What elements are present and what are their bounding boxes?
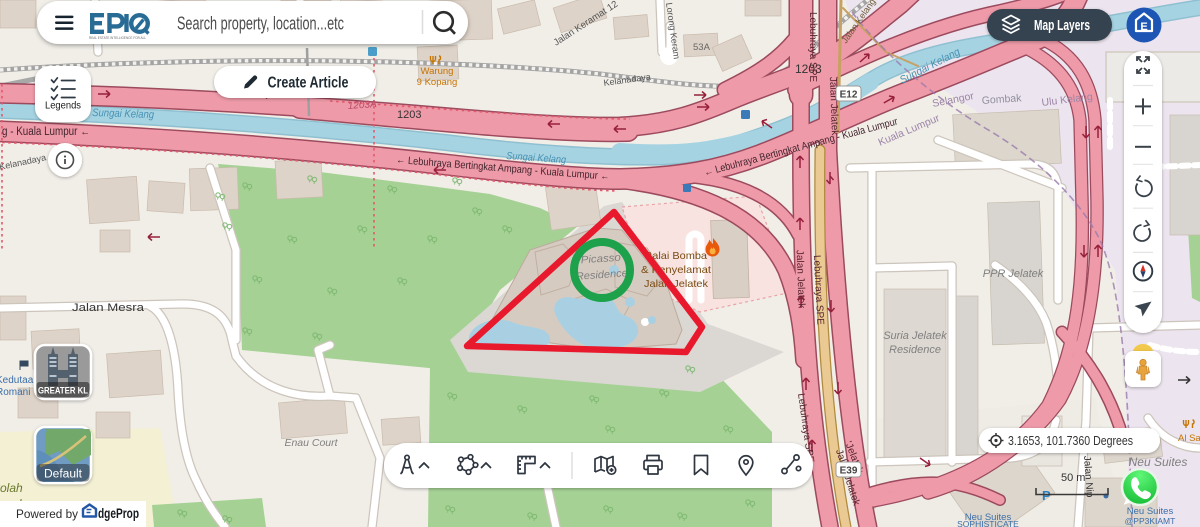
svg-text:g - Kuala Lumpur ←: g - Kuala Lumpur ← bbox=[2, 126, 90, 138]
svg-text:Al Saf: Al Saf bbox=[1178, 433, 1200, 444]
svg-text:@PP3KIAMT: @PP3KIAMT bbox=[1125, 516, 1176, 526]
svg-text:9 Kopang: 9 Kopang bbox=[417, 77, 458, 88]
svg-text:REAL ESTATE INTELLIGENCE FOR A: REAL ESTATE INTELLIGENCE FOR ALL bbox=[89, 36, 146, 40]
svg-text:53A: 53A bbox=[693, 42, 711, 53]
svg-text:PPR Jelatek: PPR Jelatek bbox=[983, 268, 1044, 280]
svg-text:1203A: 1203A bbox=[347, 99, 377, 112]
svg-text:E: E bbox=[1140, 21, 1147, 33]
svg-text:Romani: Romani bbox=[0, 387, 30, 398]
svg-text:1203: 1203 bbox=[397, 109, 421, 121]
svg-text:Search property, location...et: Search property, location...etc bbox=[177, 13, 344, 34]
svg-text:Jalan Jelatek: Jalan Jelatek bbox=[794, 250, 807, 310]
svg-text:Neu Suites: Neu Suites bbox=[1129, 455, 1188, 469]
svg-text:P: P bbox=[1042, 488, 1051, 503]
svg-text:Jalan Mesra: Jalan Mesra bbox=[72, 302, 145, 314]
svg-text:3.1653, 101.7360 Degrees: 3.1653, 101.7360 Degrees bbox=[1008, 433, 1133, 448]
svg-text:50 m: 50 m bbox=[1061, 472, 1085, 484]
svg-text:Map Layers: Map Layers bbox=[1034, 18, 1090, 34]
svg-text:Legends: Legends bbox=[45, 100, 81, 112]
svg-text:Sungai Kelang: Sungai Kelang bbox=[92, 107, 155, 121]
svg-text:E39: E39 bbox=[840, 466, 858, 477]
svg-text:E12: E12 bbox=[840, 90, 858, 101]
svg-text:kolah: kolah bbox=[0, 481, 23, 495]
svg-text:Kedutaa: Kedutaa bbox=[0, 375, 34, 386]
svg-text:Suria Jelatek: Suria Jelatek bbox=[883, 330, 947, 342]
svg-text:Default: Default bbox=[44, 469, 83, 481]
svg-text:Lebuhraya SPE: Lebuhraya SPE bbox=[807, 12, 818, 82]
svg-text:Powered by: Powered by bbox=[16, 509, 78, 521]
svg-text:Create Article: Create Article bbox=[268, 75, 349, 92]
svg-text:Residence: Residence bbox=[889, 344, 941, 356]
svg-text:Enau Court: Enau Court bbox=[284, 437, 338, 449]
svg-text:SOPHISTICATE: SOPHISTICATE bbox=[957, 519, 1019, 527]
svg-text:GREATER KL: GREATER KL bbox=[38, 386, 88, 397]
svg-text:Warung: Warung bbox=[421, 66, 454, 77]
svg-text:dgeProp: dgeProp bbox=[98, 506, 139, 521]
